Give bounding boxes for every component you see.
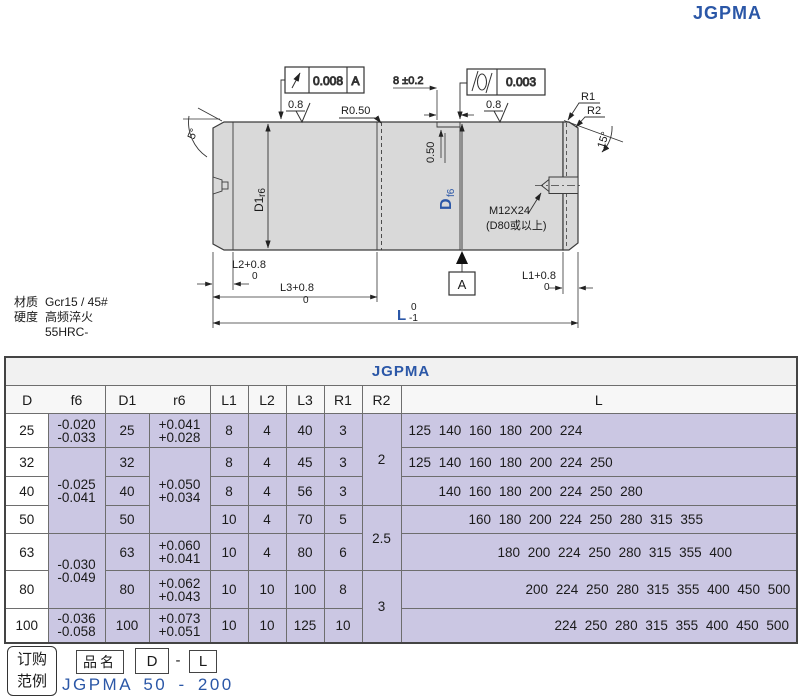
tol-upper: -0.020 (49, 418, 105, 431)
cell-d: 50 (5, 506, 48, 534)
product-name-label: 品名 (76, 650, 124, 674)
cell-r1: 5 (324, 506, 362, 534)
tol-upper: +0.041 (150, 418, 210, 431)
angle-left-label: 5° (186, 127, 201, 141)
surface-roughness-right: 0.8 (484, 99, 508, 122)
table-row: 32 -0.025 -0.041 32 +0.050 +0.034 8 4 45… (5, 448, 797, 477)
cell-l2: 4 (248, 477, 286, 506)
datum-flag: A (458, 277, 467, 292)
dim-l2: L2+0.8 0 (197, 259, 266, 284)
cell-l3: 70 (286, 506, 324, 534)
cell-r1: 3 (324, 448, 362, 477)
cell-l2: 10 (248, 571, 286, 609)
dim-groove-width: 8 ±0.2 (393, 75, 474, 120)
l-dim-sub: -1 (409, 313, 418, 324)
header-d: D (6, 392, 48, 408)
header-r1: R1 (324, 386, 362, 414)
surface-roughness-left: 0.8 (286, 99, 310, 122)
header-l1: L1 (210, 386, 248, 414)
cell-l3: 40 (286, 414, 324, 448)
tol-lower: -0.033 (49, 431, 105, 444)
cell-lengths: 140 160 180 200 224 250 280 (401, 477, 797, 506)
cell-l1: 8 (210, 414, 248, 448)
cell-l3: 125 (286, 609, 324, 643)
tol-lower: +0.041 (150, 552, 210, 565)
thread-spec: M12X24 (489, 205, 530, 217)
cell-r6-tol: +0.073 +0.051 (149, 609, 210, 643)
tol-upper: -0.025 (49, 478, 105, 491)
cell-l1: 10 (210, 571, 248, 609)
cell-d1: 63 (105, 534, 149, 571)
page-title: JGPMA (693, 3, 762, 24)
cell-d: 40 (5, 477, 48, 506)
catalog-page: JGPMA (0, 0, 800, 699)
cell-d1: 50 (105, 506, 149, 534)
cell-lengths: 125 140 160 180 200 224 250 (401, 448, 797, 477)
dim-extension-lines (213, 252, 578, 328)
l2-dim-sub: 0 (252, 271, 258, 282)
order-box-line1: 订购 (17, 649, 47, 671)
cell-f6-tol: -0.036 -0.058 (48, 609, 105, 643)
tol-lower: -0.058 (49, 625, 105, 638)
tol-lower: -0.049 (49, 571, 105, 584)
cylindricity-value: 0.003 (506, 75, 536, 89)
cell-lengths: 160 180 200 224 250 280 315 355 (401, 506, 797, 534)
dim-l1: L1+0.8 0 (522, 270, 593, 293)
cell-d1: 40 (105, 477, 149, 506)
cell-r6-tol: +0.060 +0.041 (149, 534, 210, 571)
cell-l2: 4 (248, 506, 286, 534)
l-dim-sup: 0 (411, 302, 417, 313)
runout-value: 0.008 (313, 74, 343, 88)
cell-l2: 4 (248, 414, 286, 448)
l2-dim-label: L2+0.8 (232, 259, 266, 271)
roughness-right-value: 0.8 (486, 99, 501, 111)
order-code-dash: - (172, 648, 184, 672)
roughness-left-value: 0.8 (288, 99, 303, 111)
cell-l3: 45 (286, 448, 324, 477)
header-l: L (401, 386, 797, 414)
r1-label: R1 (581, 91, 595, 103)
cell-lengths: 224 250 280 315 355 400 450 500 (401, 609, 797, 643)
cell-l2: 10 (248, 609, 286, 643)
tol-lower: +0.034 (150, 491, 210, 504)
dim-l: L 0 -1 (213, 302, 578, 324)
table-header-row: Df6 D1r6 L1 L2 L3 R1 R2 L (5, 386, 797, 414)
order-code-l: L (189, 650, 217, 673)
cell-r2: 3 (362, 571, 401, 643)
table-row: 100 -0.036 -0.058 100 +0.073 +0.051 10 1… (5, 609, 797, 643)
cell-r1: 8 (324, 571, 362, 609)
dim-l3: L3+0.8 0 (213, 282, 377, 306)
tol-lower: +0.043 (150, 590, 210, 603)
hardness-value: 高频淬火 (45, 309, 93, 324)
cell-lengths: 200 224 250 280 315 355 400 450 500 (401, 571, 797, 609)
header-f6: f6 (48, 392, 104, 408)
table-row: 63 -0.030 -0.049 63 +0.060 +0.041 10 4 8… (5, 534, 797, 571)
shaft-drawing: 0.008 A 0.003 8 ±0.2 0.8 (0, 0, 800, 352)
table-row: 25 -0.020 -0.033 25 +0.041 +0.028 8 4 40… (5, 414, 797, 448)
tol-lower: +0.028 (150, 431, 210, 444)
l-dim-label: L (397, 307, 406, 324)
cell-r1: 6 (324, 534, 362, 571)
cell-lengths: 125 140 160 180 200 224 (401, 414, 797, 448)
r2-label: R2 (587, 105, 601, 117)
cell-d1: 80 (105, 571, 149, 609)
cell-d: 32 (5, 448, 48, 477)
l1-dim-label: L1+0.8 (522, 270, 556, 282)
radius-groove-label: R0.50 (341, 105, 370, 117)
cell-d1: 32 (105, 448, 149, 477)
material-label: 材质 (14, 295, 38, 309)
l3-dim-label: L3+0.8 (280, 282, 314, 294)
order-example-box: 订购 范例 (7, 646, 57, 696)
cell-l3: 80 (286, 534, 324, 571)
cell-l1: 8 (210, 448, 248, 477)
cell-r6-tol: +0.050 +0.034 (149, 448, 210, 534)
angle-right-label: 15° (595, 130, 612, 150)
tol-upper: +0.062 (150, 577, 210, 590)
d-label: D (438, 198, 455, 210)
spec-table: JGPMA Df6 D1r6 L1 L2 L3 R1 R2 L 25 -0.02… (4, 356, 798, 644)
order-example-text: JGPMA 50 - 200 (62, 675, 234, 695)
cell-d: 63 (5, 534, 48, 571)
order-box-line2: 范例 (17, 671, 47, 693)
l1-dim-sub: 0 (544, 282, 550, 293)
table-row: 40 40 8 4 56 3 140 160 180 200 224 250 2… (5, 477, 797, 506)
cell-f6-tol: -0.030 -0.049 (48, 534, 105, 609)
header-d-f6: Df6 (5, 386, 105, 414)
cell-d: 100 (5, 609, 48, 643)
hardness-value2: 55HRC- (45, 325, 88, 339)
dim-radius-groove: R0.50 (339, 105, 381, 123)
material-note: 材质 Gcr15 / 45# 硬度 高频淬火 55HRC- (14, 295, 108, 339)
cell-f6-tol: -0.020 -0.033 (48, 414, 105, 448)
header-l3: L3 (286, 386, 324, 414)
cell-l2: 4 (248, 448, 286, 477)
cell-r1: 10 (324, 609, 362, 643)
dim-r2: R2 (576, 105, 605, 127)
d1-fit: r6 (257, 188, 268, 197)
header-d1: D1 (106, 392, 150, 408)
groove-depth-label: 0.50 (425, 142, 437, 163)
cell-l1: 8 (210, 477, 248, 506)
cell-r6-tol: +0.062 +0.043 (149, 571, 210, 609)
thread-note: (D80或以上) (486, 219, 547, 232)
cell-r1: 3 (324, 414, 362, 448)
l3-dim-sub: 0 (303, 295, 309, 306)
table-title-row: JGPMA (5, 357, 797, 386)
cell-l1: 10 (210, 506, 248, 534)
cell-l2: 4 (248, 534, 286, 571)
header-l2: L2 (248, 386, 286, 414)
header-r6: r6 (149, 392, 209, 408)
tol-lower: +0.051 (150, 625, 210, 638)
cell-r1: 3 (324, 477, 362, 506)
d-fit: f6 (446, 188, 457, 197)
header-r2: R2 (362, 386, 401, 414)
cell-r2: 2.5 (362, 506, 401, 571)
order-code-d: D (135, 648, 169, 674)
table-row: 80 80 +0.062 +0.043 10 10 100 8 3 200 22… (5, 571, 797, 609)
cell-d: 25 (5, 414, 48, 448)
cell-l3: 100 (286, 571, 324, 609)
cell-r6-tol: +0.041 +0.028 (149, 414, 210, 448)
table-title: JGPMA (5, 357, 797, 386)
cell-lengths: 180 200 224 250 280 315 355 400 (401, 534, 797, 571)
cell-d: 80 (5, 571, 48, 609)
cell-d1: 100 (105, 609, 149, 643)
cell-l1: 10 (210, 609, 248, 643)
d1-label: D1 (252, 196, 266, 212)
cell-f6-tol: -0.025 -0.041 (48, 448, 105, 534)
tol-lower: -0.041 (49, 491, 105, 504)
cell-l1: 10 (210, 534, 248, 571)
header-d1-r6: D1r6 (105, 386, 210, 414)
groove-width-label: 8 ±0.2 (393, 75, 424, 87)
tol-upper: +0.050 (150, 478, 210, 491)
cell-l3: 56 (286, 477, 324, 506)
hardness-label: 硬度 (14, 309, 38, 324)
runout-datum: A (351, 74, 359, 88)
table-row: 50 50 10 4 70 5 2.5 160 180 200 224 250 … (5, 506, 797, 534)
material-value: Gcr15 / 45# (45, 295, 108, 309)
cell-r2: 2 (362, 414, 401, 506)
datum-triangle-icon (456, 251, 468, 264)
cell-d1: 25 (105, 414, 149, 448)
